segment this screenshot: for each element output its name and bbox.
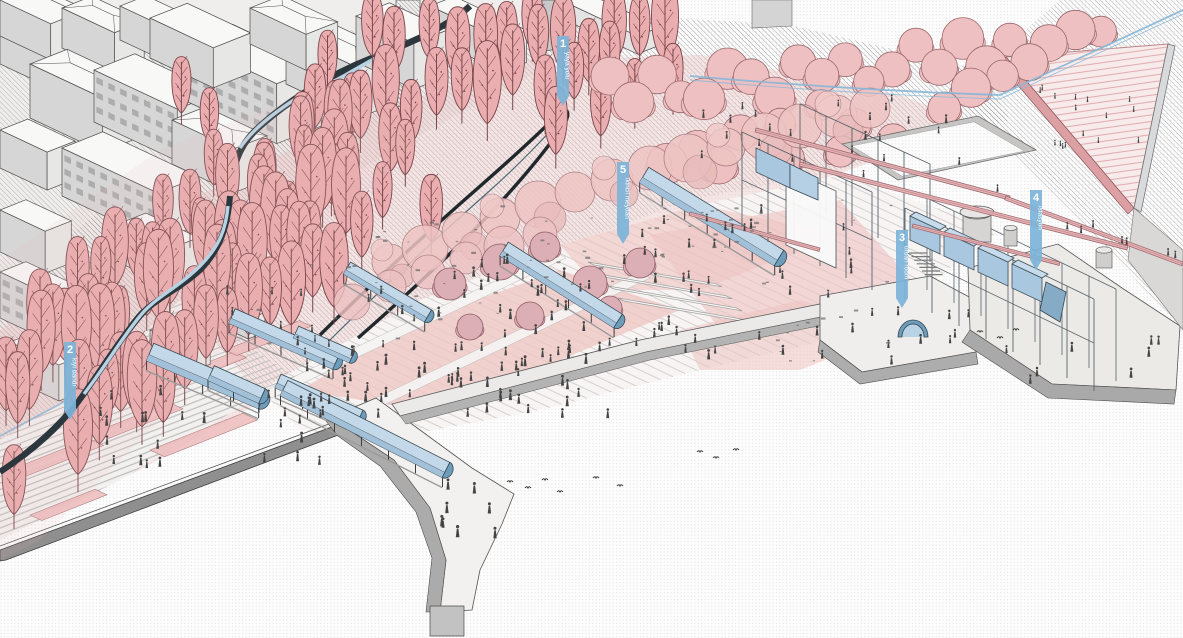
svg-text:3: 3 — [899, 232, 905, 244]
svg-text:5: 5 — [620, 164, 626, 176]
svg-text:2: 2 — [67, 344, 73, 356]
svg-text:1: 1 — [560, 38, 566, 50]
svg-text:4: 4 — [1033, 192, 1040, 204]
svg-text:ikincil meydan: ikincil meydan — [624, 178, 631, 219]
svg-text:urban room: urban room — [903, 246, 910, 279]
svg-text:kıyı bandı: kıyı bandı — [71, 358, 78, 386]
svg-text:istasyon: istasyon — [1037, 206, 1044, 230]
svg-text:yaya yolu: yaya yolu — [564, 52, 571, 80]
